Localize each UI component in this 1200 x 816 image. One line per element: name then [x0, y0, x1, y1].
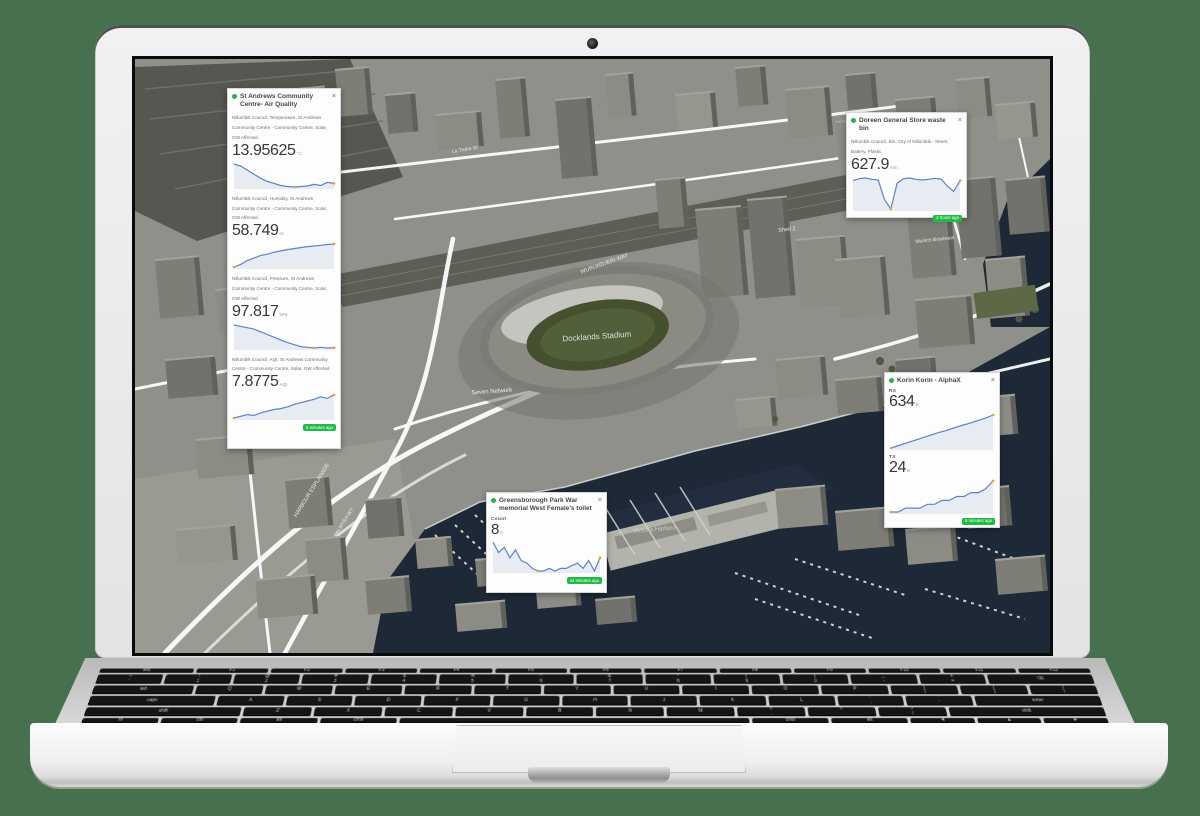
key-L: L [768, 696, 835, 705]
popup-toilet: Greensborough Park War memorial West Fem… [486, 492, 607, 593]
key-+-=: + = [919, 675, 987, 684]
keyboard-row: shiftZXCVBNM< ,> .? /shift [84, 707, 1107, 716]
key-W: W [264, 685, 333, 694]
popup-title: Doreen General Store waste bin [859, 117, 955, 133]
metric-unit: # [500, 530, 503, 535]
building [605, 72, 637, 118]
key-F11: F11 [943, 669, 1016, 673]
count-sparkline [491, 538, 602, 574]
building [845, 71, 878, 109]
humidity-sparkline [232, 240, 336, 270]
key-Z: Z [242, 707, 312, 716]
keyboard: escF1F2F3F4F5F6F7F8F9F10F11F12~ `! 1@ 2#… [83, 669, 1107, 718]
laptop-keyboard-deck: escF1F2F3F4F5F6F7F8F9F10F11F12~ `! 1@ 2#… [55, 658, 1135, 724]
key-)-0: ) 0 [782, 675, 849, 684]
metric-unit: °C [297, 151, 302, 156]
building [385, 91, 418, 133]
building [995, 101, 1038, 140]
metric-rx: RX 634B [889, 389, 995, 451]
last-updated-badge: 6 minutes ago [962, 518, 995, 525]
key-*-8: * 8 [645, 675, 711, 684]
webcam-icon [587, 38, 598, 49]
trackpad [452, 725, 746, 773]
key-F3: F3 [345, 669, 418, 673]
metric-temperature: Nillumbik Council, Temperature, St Andre… [232, 113, 336, 189]
key-F5: F5 [495, 669, 567, 673]
building [155, 255, 204, 319]
popup-korin: Korin Korin - AlphaX × RX 634B TX 24B 6 … [884, 372, 1000, 528]
building [675, 91, 718, 130]
key-}-]: } ] [960, 685, 1029, 694]
building [915, 294, 975, 349]
building [415, 536, 453, 569]
key-X: X [313, 707, 382, 716]
key-#-3: # 3 [302, 675, 369, 684]
metric-unit: kPa [280, 312, 288, 317]
rx-sparkline [889, 411, 995, 451]
key-U: U [613, 685, 680, 694]
metric-value: 13.95625°C [232, 143, 336, 160]
key-:-;: : ; [837, 696, 905, 705]
key-G: G [493, 696, 559, 705]
laptop-base [30, 723, 1168, 787]
metric-pressure: Nillumbik Council, Pressure, St Andrews … [232, 274, 336, 350]
keyboard-row: tabQWERTYUIOP{ [} ]| \ [91, 685, 1098, 694]
key-B: B [526, 707, 594, 716]
status-dot-icon [491, 498, 496, 503]
bin-fill-sparkline [851, 174, 962, 212]
metric-value: 97.817kPa [232, 304, 336, 321]
key-J: J [631, 696, 697, 705]
metric-bin-fill: Nillumbik Council, Bin, City of Nillumbi… [851, 137, 962, 212]
key-M: M [667, 707, 735, 716]
metric-humidity: Nillumbik Council, Humidity, St Andrews … [232, 194, 336, 270]
popup-title: Korin Korin - AlphaX [897, 377, 961, 385]
key-F10: F10 [868, 669, 941, 673]
popup-waste-bin: Doreen General Store waste bin × Nillumb… [846, 112, 967, 218]
keyboard-row: ~ `! 1@ 2# 3$ 4% 5^ 6& 7* 8( 9) 0_ -+ =⌫ [95, 675, 1094, 684]
page-background: Docklands StadiumSeven NetworkWURUNDJERI… [0, 0, 1200, 816]
key-{-[: { [ [890, 685, 959, 694]
key-shift: shift [84, 707, 242, 716]
key-R: R [404, 685, 472, 694]
key-!-1: ! 1 [164, 675, 232, 684]
metric-aqi: Nillumbik Council, AQI, St Andrews Commu… [232, 355, 336, 422]
building [175, 524, 238, 565]
key-caps: caps [88, 696, 216, 705]
key-?-/: ? / [878, 707, 948, 716]
popup-header: St Andrews Community Centre- Air Quality… [232, 93, 336, 109]
metric-tx: TX 24B [889, 455, 995, 515]
keyboard-row: capsASDFGHJKL: ;" 'enter [88, 696, 1103, 705]
building [285, 475, 333, 529]
key-P: P [821, 685, 889, 694]
metric-unit: B [916, 402, 919, 407]
building [735, 396, 777, 429]
popup-header: Korin Korin - AlphaX × [889, 377, 995, 385]
building [495, 76, 530, 138]
temperature-sparkline [232, 160, 336, 190]
key-T: T [474, 685, 541, 694]
key-H: H [562, 696, 628, 705]
key-tab: tab [91, 685, 194, 694]
key-$-4: $ 4 [370, 675, 437, 684]
key-E: E [334, 685, 402, 694]
building [775, 355, 828, 399]
popup-header: Greensborough Park War memorial West Fem… [491, 497, 602, 513]
last-updated-badge: 5 minutes ago [303, 424, 336, 431]
building [835, 255, 890, 319]
building [785, 85, 833, 139]
key-F: F [424, 696, 491, 705]
popup-title: St Andrews Community Centre- Air Quality [240, 93, 329, 109]
key-F2: F2 [270, 669, 343, 673]
metric-description: Nillumbik Council, AQI, St Andrews Commu… [232, 355, 336, 375]
building [165, 355, 218, 399]
key-(-9: ( 9 [714, 675, 781, 684]
key-F4: F4 [420, 669, 492, 673]
key-|-\: | \ [1029, 685, 1099, 694]
metric-description: Nillumbik Council, Pressure, St Andrews … [232, 274, 336, 304]
key->-.: > . [807, 707, 876, 716]
key-esc: esc [99, 669, 194, 673]
key-V: V [455, 707, 523, 716]
popup-header: Doreen General Store waste bin × [851, 117, 962, 133]
key-shift: shift [948, 707, 1106, 716]
metric-value: 7.8775AQI [232, 374, 336, 391]
key-^-6: ^ 6 [508, 675, 574, 684]
key-N: N [596, 707, 664, 716]
close-icon[interactable]: × [958, 117, 962, 133]
key-Q: Q [195, 685, 264, 694]
status-dot-icon [889, 378, 894, 383]
key-~-`: ~ ` [95, 675, 164, 684]
building [435, 110, 484, 150]
metric-value: 627.9mm [851, 157, 962, 174]
key-O: O [752, 685, 820, 694]
popup-title: Greensborough Park War memorial West Fem… [499, 497, 595, 513]
last-updated-badge: 2 hours ago [933, 215, 962, 222]
status-dot-icon [232, 94, 237, 99]
key-F12: F12 [1018, 669, 1091, 673]
metric-unit: B [907, 468, 910, 473]
building [735, 64, 768, 106]
building [655, 176, 689, 228]
close-icon[interactable]: × [332, 93, 336, 109]
keyboard-row: escF1F2F3F4F5F6F7F8F9F10F11F12 [99, 669, 1091, 673]
key-F6: F6 [570, 669, 642, 673]
map-viewport[interactable]: Docklands StadiumSeven NetworkWURUNDJERI… [135, 59, 1050, 653]
key-Y: Y [543, 685, 610, 694]
status-dot-icon [851, 118, 856, 123]
key-%-5: % 5 [439, 675, 505, 684]
key-_--: _ - [850, 675, 917, 684]
key-C: C [384, 707, 453, 716]
key-F1: F1 [196, 669, 269, 673]
key-A: A [216, 696, 284, 705]
building [995, 555, 1048, 595]
key-S: S [285, 696, 353, 705]
building [905, 525, 958, 565]
key-<-,: < , [737, 707, 806, 716]
close-icon[interactable]: × [598, 497, 602, 513]
metric-unit: mm [890, 165, 898, 170]
aqi-sparkline [232, 391, 336, 421]
building [365, 575, 412, 615]
tx-sparkline [889, 477, 995, 515]
key-K: K [699, 696, 766, 705]
metric-count: Count 8# [491, 517, 602, 574]
building [1005, 176, 1050, 235]
key-"-': " ' [906, 696, 974, 705]
metric-value: 634B [889, 394, 995, 411]
key-&-7: & 7 [577, 675, 643, 684]
metric-description: Nillumbik Council, Humidity, St Andrews … [232, 194, 336, 224]
laptop-screen: Docklands StadiumSeven NetworkWURUNDJERI… [132, 56, 1053, 656]
key-F7: F7 [644, 669, 716, 673]
building [365, 496, 404, 539]
key-@-2: @ 2 [233, 675, 301, 684]
building [595, 596, 637, 625]
popup-air-quality: St Andrews Community Centre- Air Quality… [227, 88, 341, 449]
last-updated-badge: 44 minutes ago [567, 577, 602, 584]
key-I: I [682, 685, 749, 694]
key-F9: F9 [794, 669, 867, 673]
building [455, 600, 507, 632]
metric-value: 24B [889, 460, 995, 477]
close-icon[interactable]: × [991, 377, 995, 385]
building [835, 375, 884, 415]
metric-description: Nillumbik Council, Temperature, St Andre… [232, 113, 336, 143]
metric-description: Nillumbik Council, Bin, City of Nillumbi… [851, 137, 962, 157]
building [555, 96, 598, 179]
lid-notch [528, 767, 670, 783]
pressure-sparkline [232, 321, 336, 351]
key-⌫: ⌫ [987, 675, 1095, 684]
key-enter: enter [974, 696, 1102, 705]
key-F8: F8 [719, 669, 791, 673]
key-D: D [354, 696, 421, 705]
building [775, 485, 828, 529]
metric-unit: % [280, 231, 284, 236]
metric-unit: AQI [280, 382, 288, 387]
laptop-screen-bezel: Docklands StadiumSeven NetworkWURUNDJERI… [95, 25, 1090, 658]
metric-value: 8# [491, 522, 602, 538]
metric-value: 58.749% [232, 223, 336, 240]
building [255, 574, 318, 619]
